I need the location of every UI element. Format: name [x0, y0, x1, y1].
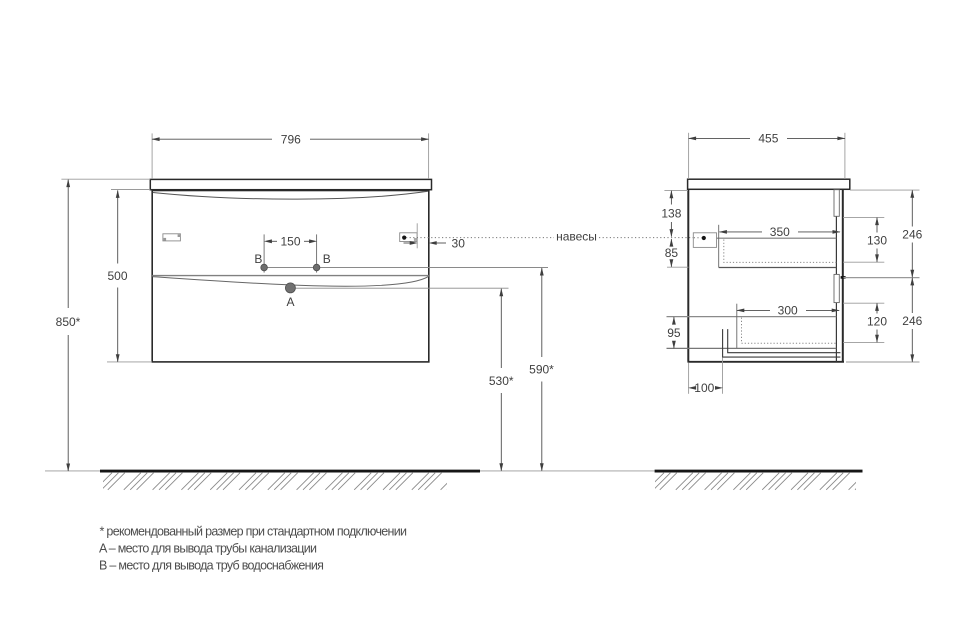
svg-text:100: 100	[694, 381, 714, 395]
svg-text:455: 455	[758, 132, 778, 146]
svg-text:500: 500	[107, 269, 127, 283]
svg-text:A: A	[286, 295, 294, 309]
svg-text:85: 85	[665, 246, 679, 260]
svg-text:120: 120	[867, 315, 887, 329]
svg-text:246: 246	[902, 228, 922, 242]
svg-text:300: 300	[778, 304, 798, 318]
svg-text:A – место для вывода трубы кан: A – место для вывода трубы канализации	[99, 542, 317, 556]
svg-text:95: 95	[667, 326, 681, 340]
svg-text:150: 150	[280, 235, 300, 249]
svg-text:138: 138	[661, 207, 681, 221]
svg-text:530*: 530*	[489, 374, 514, 388]
svg-text:130: 130	[867, 234, 887, 248]
svg-text:350: 350	[770, 225, 790, 239]
svg-text:850*: 850*	[56, 315, 81, 329]
svg-text:B – место для вывода труб водо: B – место для вывода труб водоснабжения	[99, 559, 323, 573]
svg-text:B: B	[323, 252, 331, 266]
svg-text:796: 796	[281, 133, 301, 147]
svg-text:навесы: навесы	[556, 230, 597, 244]
svg-text:30: 30	[452, 236, 466, 250]
svg-text:* рекомендованный размер при с: * рекомендованный размер при стандартном…	[100, 525, 407, 539]
svg-text:246: 246	[902, 314, 922, 328]
svg-text:590*: 590*	[529, 363, 554, 377]
svg-text:B: B	[254, 252, 262, 266]
